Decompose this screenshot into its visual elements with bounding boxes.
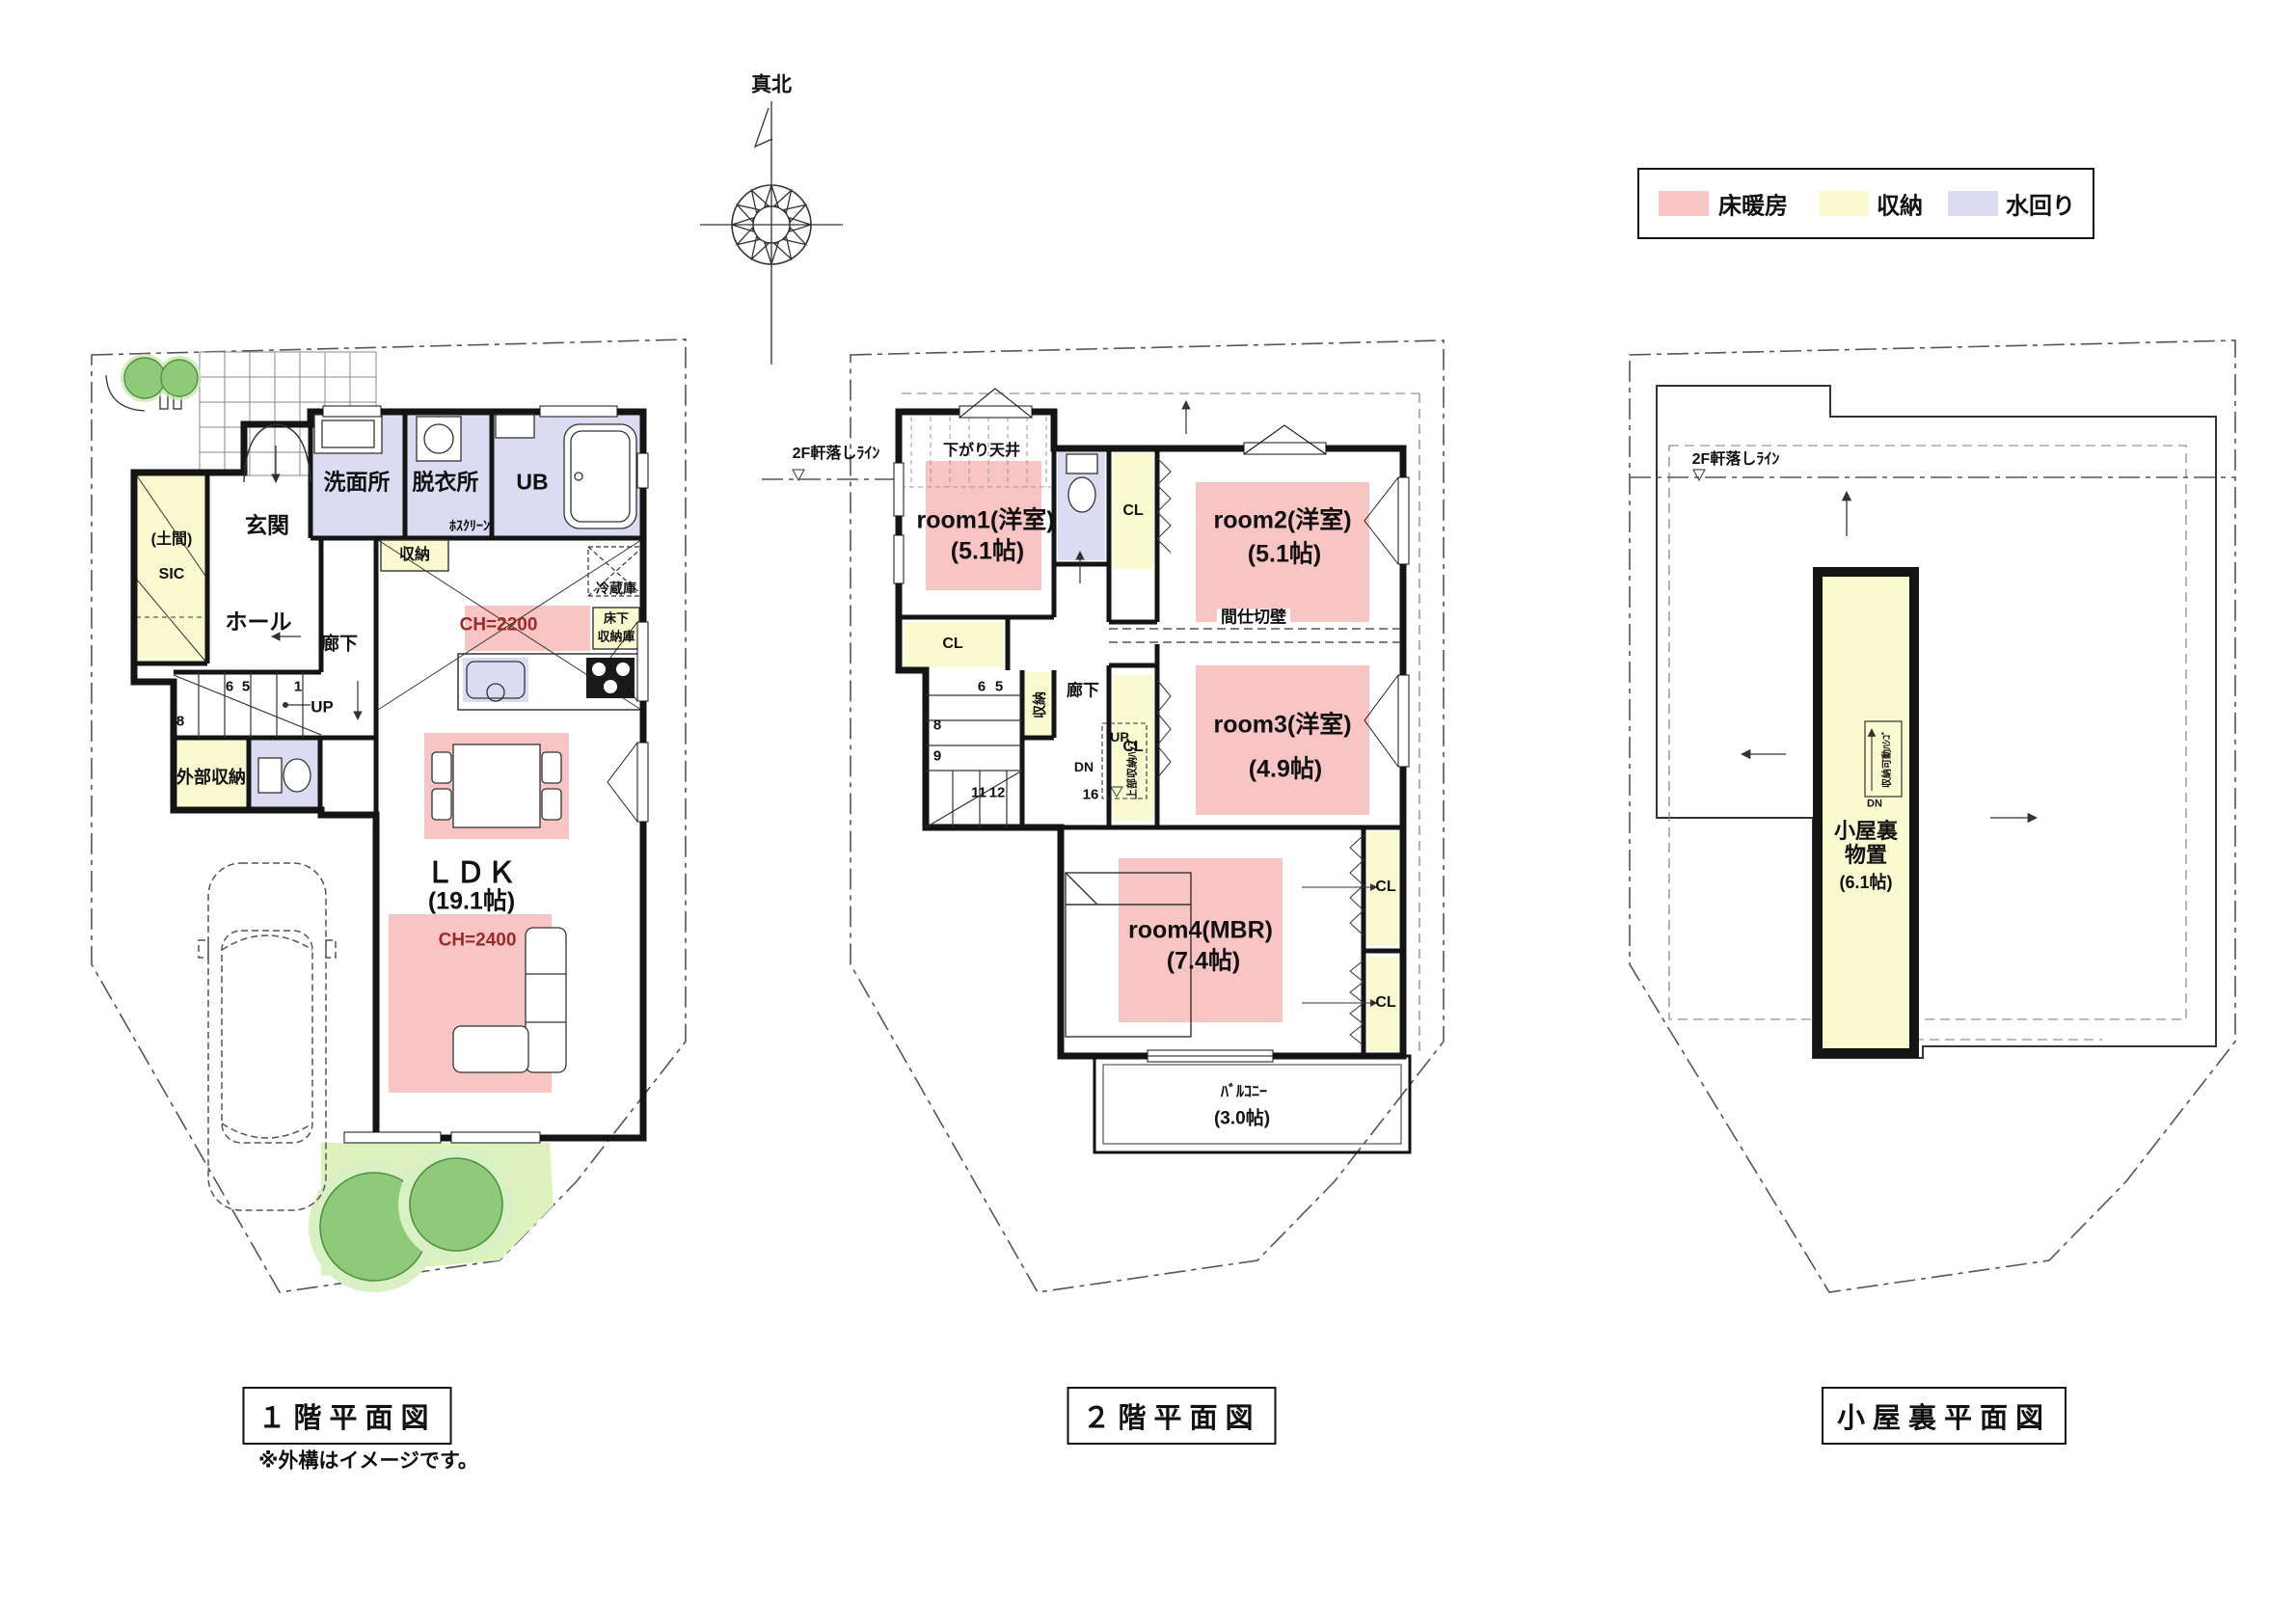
room-label-closet-2f: 収納	[1033, 691, 1046, 718]
room-label-corridor-1f: 廊下	[321, 636, 358, 654]
washer-icon	[417, 417, 461, 461]
room-label-room1-size: (5.1帖)	[951, 540, 1024, 564]
label-upper-storage-ladder: 上部収納ﾊｼｺﾞ	[1128, 736, 1139, 799]
label-dn-attic: DN	[1867, 799, 1882, 810]
stair-number: 5	[995, 680, 1003, 694]
label-ceiling-height-living: CH=2400	[439, 932, 517, 950]
room-label-room4-size: (7.4帖)	[1167, 950, 1240, 974]
legend-label-storage: 収納	[1877, 187, 1923, 221]
label-eave-line-attic: 2F軒落しﾗｲﾝ	[1692, 452, 1780, 468]
room-label-hall: ホール	[226, 611, 292, 634]
label-up-1f: UP	[311, 699, 334, 716]
legend-swatch-floor-heating	[1659, 191, 1709, 216]
label-fridge: 冷蔵庫	[596, 582, 636, 595]
label-attic-ladder: 収納可動ﾊｼｺﾞ	[1883, 730, 1893, 788]
room-label-room2-size: (5.1帖)	[1248, 543, 1321, 567]
closet-label: CL	[942, 636, 962, 652]
room-label-ldk: ＬＤＫ	[425, 859, 518, 888]
toilet-icon	[1067, 454, 1097, 512]
room-label-room1: room1(洋室)	[916, 509, 1054, 533]
balcony	[1094, 1050, 1410, 1152]
closet-label: CL	[1122, 503, 1143, 519]
room-label-bath: UB	[516, 472, 548, 494]
label-partition-wall: 間仕切壁	[1217, 609, 1290, 626]
label-lowered-ceiling: 下がり天井	[943, 444, 1020, 459]
stair-number: 1	[294, 680, 302, 694]
stair-number: 6	[978, 680, 986, 694]
room-label-closet-1f: 収納	[399, 548, 430, 563]
room-label-doma: (土間)	[151, 532, 193, 548]
room-label-ext-storage: 外部収納	[176, 769, 246, 786]
floor1-title: １階平面図	[242, 1387, 451, 1445]
label-eave-line-2f: 2F軒落しﾗｲﾝ	[793, 447, 880, 462]
legend-label-water: 水回り	[2006, 187, 2075, 221]
stair-number: 16	[1083, 788, 1099, 802]
legend-label-floor-heating: 床暖房	[1718, 187, 1788, 221]
room-label-dressing: 脱衣所	[413, 472, 479, 494]
attic-storage-room	[1818, 572, 1914, 1053]
room-label-corridor-2f: 廊下	[1067, 683, 1099, 699]
room-label-attic-2: 物置	[1845, 845, 1887, 866]
label-underfloor-storage-1: 床下	[604, 612, 629, 625]
stove-icon	[586, 658, 635, 698]
floor2-plan	[762, 340, 1444, 1292]
bush-icon	[121, 354, 202, 402]
label-underfloor-storage-2: 収納庫	[597, 631, 635, 643]
legend-swatch-water	[1948, 191, 1998, 216]
compass-icon	[700, 101, 843, 365]
room-label-balcony-size: (3.0帖)	[1214, 1110, 1270, 1128]
floorplan-sheet: 真北 床暖房 収納 水回り 洗面所 脱衣所 ﾎｽｸﾘｰﾝ UB 玄関 (土間) …	[0, 0, 2296, 1624]
label-ceiling-height-kitchen: CH=2200	[460, 616, 538, 635]
room-label-washroom: 洗面所	[324, 472, 391, 494]
room-label-room3: room3(洋室)	[1213, 714, 1351, 738]
room-label-attic-size: (6.1帖)	[1839, 874, 1892, 891]
attic-title: 小屋裏平面図	[1822, 1387, 2066, 1445]
stair-number: 11	[971, 786, 986, 800]
legend-swatch-storage	[1819, 191, 1869, 216]
exterior-note: ※外構はイメージです。	[258, 1451, 478, 1472]
stair-number: 5	[242, 680, 250, 694]
vanity-icon	[314, 415, 382, 453]
garden-tree-icon	[314, 1152, 508, 1286]
roof-outline	[1657, 386, 2216, 1058]
room-label-room4: room4(MBR)	[1128, 919, 1273, 943]
stair-number: 12	[989, 786, 1006, 800]
room-label-entrance: 玄関	[245, 515, 289, 537]
label-dn-2f: DN	[1074, 760, 1094, 773]
closet-label: CL	[1375, 880, 1395, 895]
room-label-attic-1: 小屋裏	[1834, 821, 1898, 842]
room-label-room2: room2(洋室)	[1213, 509, 1351, 533]
attic-plan	[1630, 340, 2235, 1292]
floor2-title: ２階平面図	[1067, 1387, 1276, 1445]
label-up-2f: UP	[1110, 730, 1128, 744]
room-label-sic: SIC	[159, 567, 185, 582]
room-label-balcony: ﾊﾞﾙｺﾆｰ	[1221, 1085, 1267, 1100]
compass-label: 真北	[751, 75, 792, 95]
car-icon	[199, 863, 336, 1210]
stair-number: 9	[933, 749, 941, 764]
stair-number: 6	[226, 680, 233, 694]
entrance-door-icon	[244, 424, 311, 482]
stair-number: 8	[933, 718, 941, 733]
stair-number: 8	[176, 715, 184, 729]
room-label-hoscreen: ﾎｽｸﾘｰﾝ	[449, 519, 490, 532]
floorplan-drawing	[0, 0, 2296, 1624]
room-label-room3-size: (4.9帖)	[1249, 758, 1322, 782]
closet-label: CL	[1375, 995, 1395, 1011]
legend: 床暖房 収納 水回り	[1637, 168, 2094, 239]
room-label-ldk-size: (19.1帖)	[428, 890, 515, 914]
